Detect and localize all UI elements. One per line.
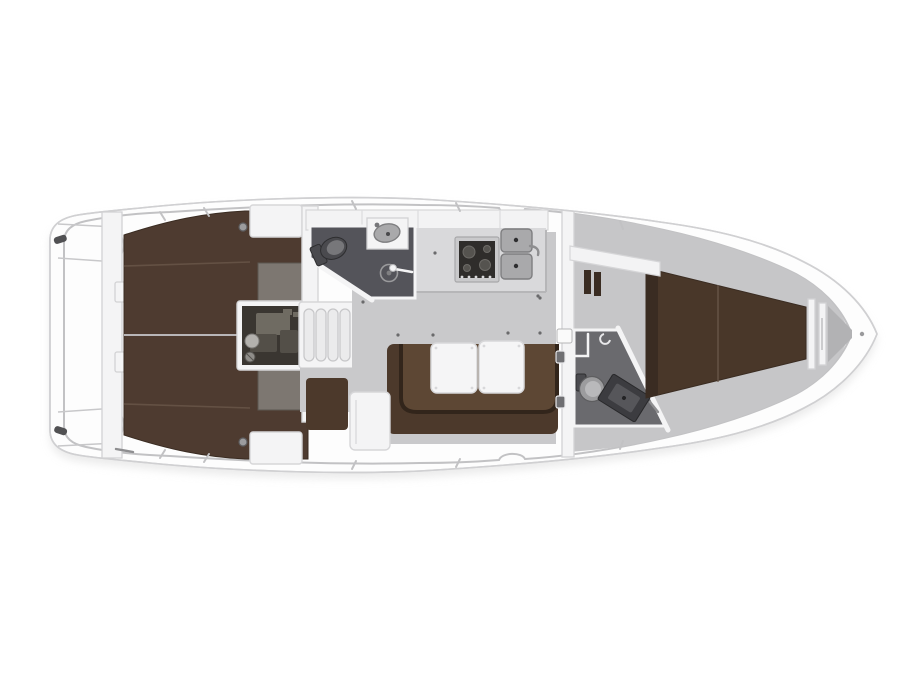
- door-latch: [557, 329, 572, 343]
- sink-drain-bottom: [514, 264, 518, 268]
- wardrobe-strip-2: [594, 272, 601, 296]
- stove: [455, 237, 499, 282]
- burner-2: [480, 260, 491, 271]
- table-leaf-right: [479, 341, 524, 393]
- engine-detail-2: [293, 312, 299, 317]
- step-3: [328, 309, 338, 361]
- engine-side-panel-port: [258, 368, 302, 410]
- vanity-drain: [386, 232, 390, 236]
- latch-starboard: [239, 223, 247, 231]
- folding-table: [431, 341, 524, 393]
- door-hinge-top: [556, 351, 565, 363]
- engine-detail-1: [283, 309, 292, 315]
- aft-cabin-entry-port: [250, 432, 302, 464]
- aft-bulkhead-panel: [102, 212, 122, 458]
- sink-drain-top: [514, 238, 518, 242]
- v-berth-headboard: [646, 268, 658, 398]
- shower-drain-center: [387, 271, 392, 276]
- yacht-layout-plan: [0, 0, 900, 675]
- grab-rail-knob: [390, 265, 397, 272]
- anchor-partition-1: [808, 299, 815, 369]
- wardrobe-strip-1: [584, 270, 591, 294]
- engine-gearbox: [280, 330, 298, 353]
- engine-side-panel-starboard: [258, 263, 302, 305]
- door-hinge-bottom: [556, 396, 565, 408]
- bow-fitting: [860, 332, 864, 336]
- aft-cabin-entry-starboard: [250, 205, 302, 237]
- aft-head-vanity: [367, 218, 408, 249]
- latch-port: [239, 438, 247, 446]
- vanity-faucet: [375, 223, 380, 228]
- burner-3: [464, 265, 471, 272]
- engine-filter: [245, 334, 259, 348]
- burner-4: [484, 246, 491, 253]
- table-leaf-left: [431, 343, 477, 393]
- engine-compartment: [237, 301, 307, 370]
- step-1: [304, 309, 314, 361]
- step-4: [340, 309, 350, 361]
- fwd-toilet-seat: [585, 381, 601, 397]
- step-2: [316, 309, 326, 361]
- burner-1: [463, 246, 475, 258]
- floor-plan-svg: [0, 0, 900, 675]
- side-bench: [306, 378, 348, 430]
